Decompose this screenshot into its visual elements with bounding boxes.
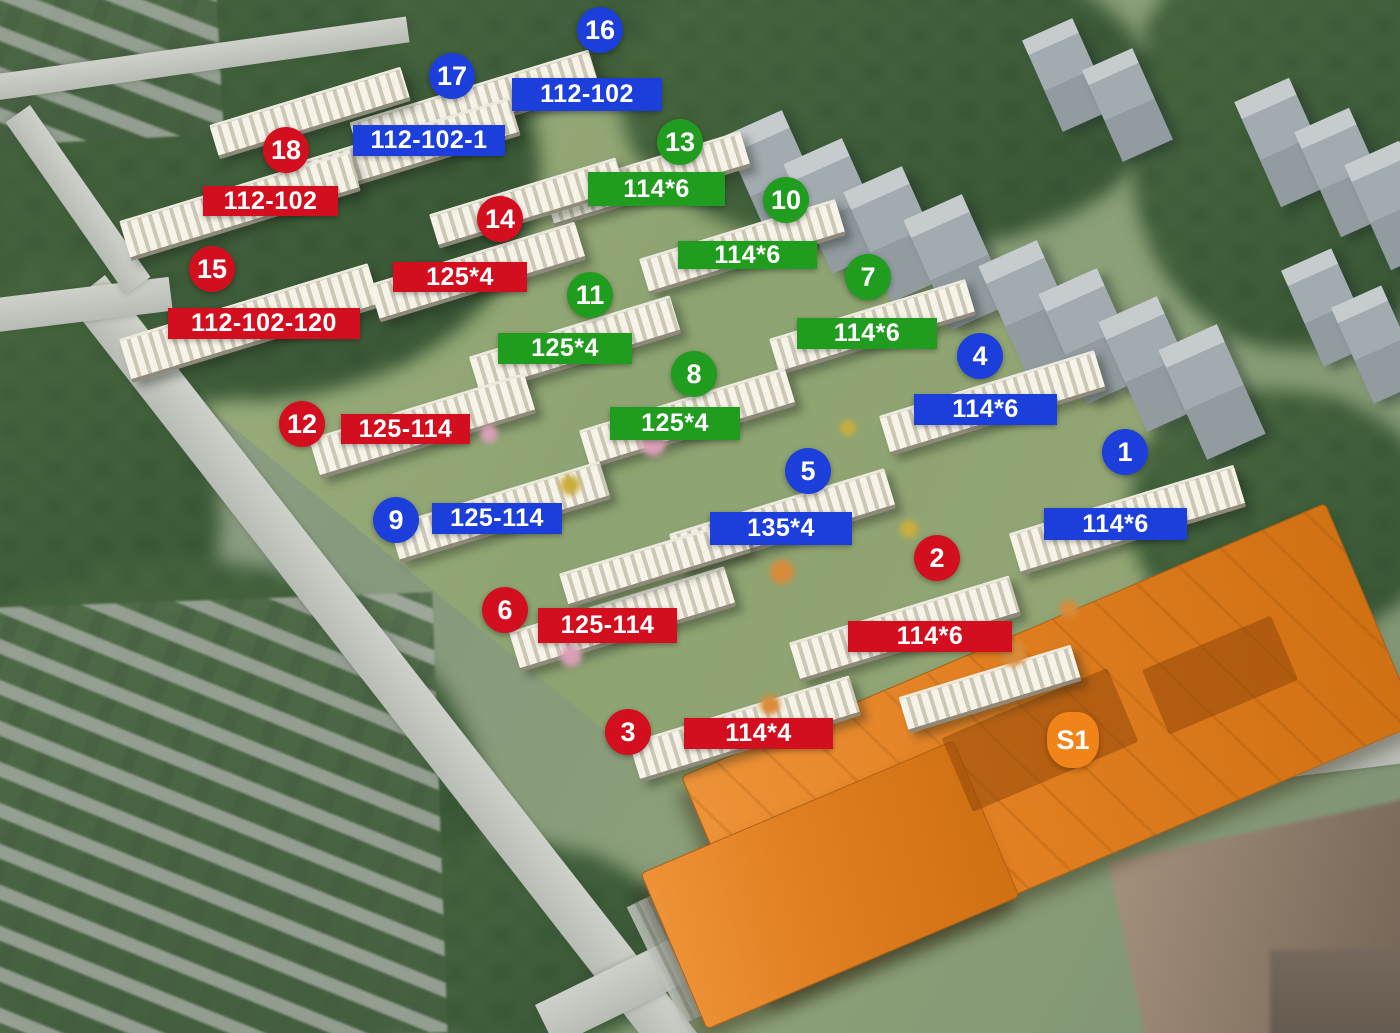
building-marker-1[interactable]: 1 <box>1102 429 1148 475</box>
unit-size-tag-4[interactable]: 114*6 <box>914 394 1057 425</box>
landscape-tree <box>1060 600 1078 618</box>
unit-size-tag-9[interactable]: 125-114 <box>432 503 562 534</box>
building-marker-11[interactable]: 11 <box>567 272 613 318</box>
construction-ground <box>1270 950 1400 1033</box>
unit-size-tag-16[interactable]: 112-102 <box>512 78 662 111</box>
building-marker-17[interactable]: 17 <box>429 53 475 99</box>
building-marker-7[interactable]: 7 <box>845 254 891 300</box>
building-marker-9[interactable]: 9 <box>373 497 419 543</box>
unit-size-tag-13[interactable]: 114*6 <box>588 172 725 206</box>
building-marker-3[interactable]: 3 <box>605 709 651 755</box>
unit-size-tag-15[interactable]: 112-102-120 <box>168 308 360 339</box>
landscape-tree <box>770 560 794 584</box>
site-plan-map: 1114*62114*63114*44114*65135*46125-11471… <box>0 0 1400 1033</box>
building-marker-5[interactable]: 5 <box>785 448 831 494</box>
landscape-tree <box>900 520 918 538</box>
unit-size-tag-11[interactable]: 125*4 <box>498 333 632 364</box>
unit-size-tag-10[interactable]: 114*6 <box>678 241 817 269</box>
unit-size-tag-2[interactable]: 114*6 <box>848 621 1012 652</box>
unit-size-tag-1[interactable]: 114*6 <box>1044 508 1187 540</box>
unit-size-tag-12[interactable]: 125-114 <box>341 414 470 444</box>
unit-size-tag-18[interactable]: 112-102 <box>203 186 338 216</box>
unit-size-tag-6[interactable]: 125-114 <box>538 608 677 643</box>
unit-size-tag-7[interactable]: 114*6 <box>797 318 937 349</box>
building-marker-15[interactable]: 15 <box>189 246 235 292</box>
building-marker-13[interactable]: 13 <box>657 119 703 165</box>
building-marker-14[interactable]: 14 <box>477 196 523 242</box>
unit-size-tag-5[interactable]: 135*4 <box>710 512 852 545</box>
landscape-tree <box>480 425 498 443</box>
landscape-tree <box>760 695 780 715</box>
unit-size-tag-8[interactable]: 125*4 <box>610 407 740 440</box>
unit-size-tag-14[interactable]: 125*4 <box>393 262 527 292</box>
building-marker-10[interactable]: 10 <box>763 177 809 223</box>
building-marker-6[interactable]: 6 <box>482 587 528 633</box>
landscape-tree <box>560 645 582 667</box>
unit-size-tag-17[interactable]: 112-102-1 <box>353 125 505 156</box>
building-marker-16[interactable]: 16 <box>577 7 623 53</box>
building-marker-8[interactable]: 8 <box>671 351 717 397</box>
landscape-tree <box>560 475 580 495</box>
building-marker-18[interactable]: 18 <box>263 127 309 173</box>
commercial-marker-s1[interactable]: S1 <box>1047 712 1099 768</box>
unit-size-tag-3[interactable]: 114*4 <box>684 718 833 749</box>
landscape-tree <box>840 420 856 436</box>
building-marker-12[interactable]: 12 <box>279 401 325 447</box>
building-marker-4[interactable]: 4 <box>957 333 1003 379</box>
building-marker-2[interactable]: 2 <box>914 535 960 581</box>
